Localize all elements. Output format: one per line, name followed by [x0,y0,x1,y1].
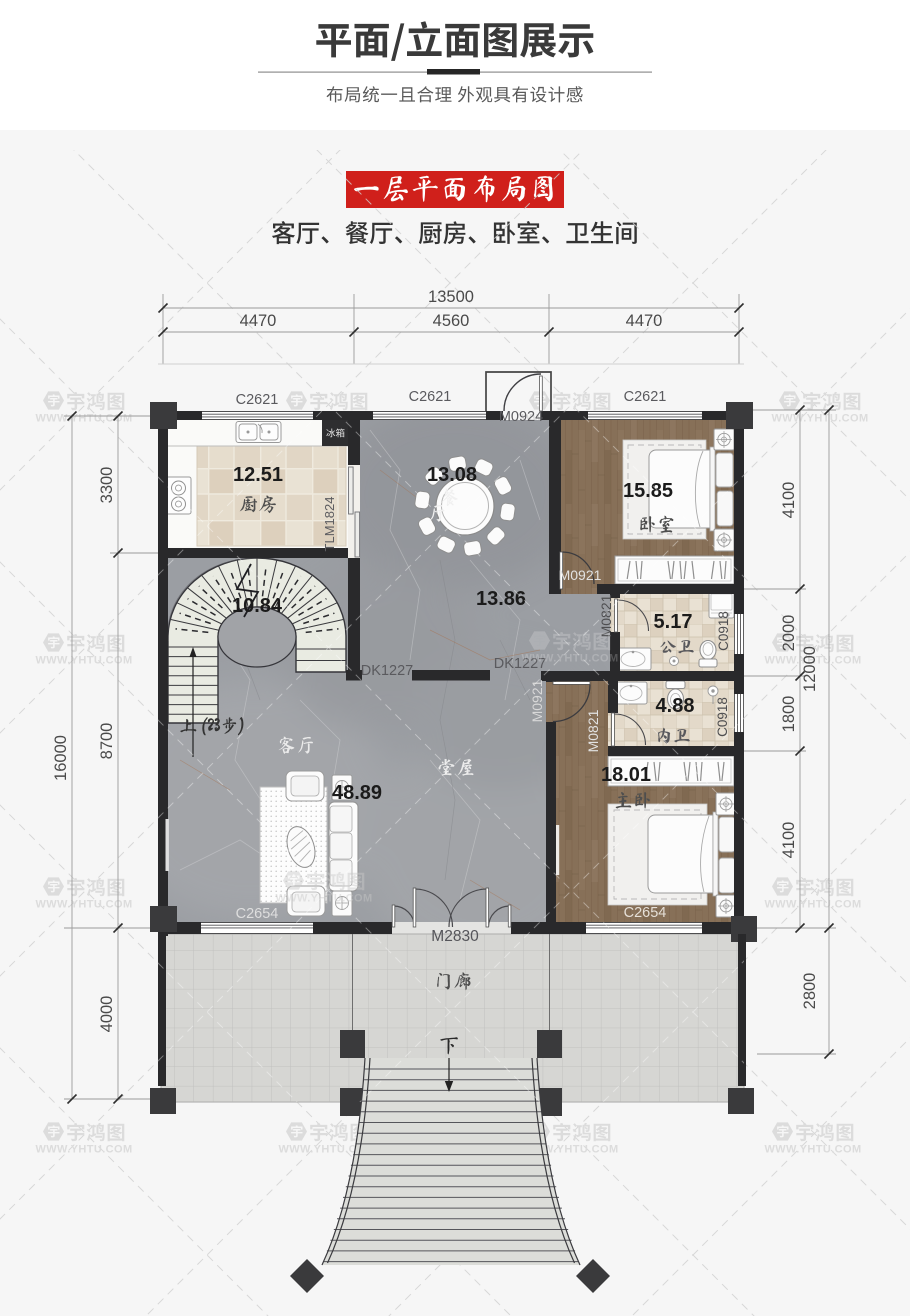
svg-text:WWW.YHTU.COM: WWW.YHTU.COM [771,413,868,425]
svg-text:2000: 2000 [780,615,798,652]
svg-text:16000: 16000 [52,735,70,781]
svg-text:5.17: 5.17 [654,611,693,633]
svg-text:4100: 4100 [780,822,798,859]
svg-text:4100: 4100 [780,482,798,519]
svg-text:C2621: C2621 [236,392,279,408]
svg-text:13500: 13500 [428,288,474,306]
svg-text:TLM1824: TLM1824 [322,497,337,552]
svg-text:48.89: 48.89 [332,782,382,804]
svg-text:18.01: 18.01 [601,764,651,786]
svg-text:M0921: M0921 [529,679,545,722]
svg-text:C2654: C2654 [236,906,279,922]
svg-text:12000: 12000 [801,646,819,692]
svg-text:8700: 8700 [98,723,116,760]
svg-text:M0921: M0921 [559,567,602,583]
svg-text:WWW.YHTU.COM: WWW.YHTU.COM [764,899,861,911]
svg-text:WWW.YHTU.COM: WWW.YHTU.COM [521,653,618,665]
svg-text:10.84: 10.84 [232,595,283,617]
svg-text:C2621: C2621 [624,389,667,405]
svg-text:2800: 2800 [801,973,819,1010]
svg-text:DK1227: DK1227 [361,663,413,679]
svg-text:M0924: M0924 [499,409,543,425]
svg-text:4560: 4560 [433,312,470,330]
svg-text:C0918: C0918 [716,611,731,651]
svg-text:C2654: C2654 [624,905,667,921]
svg-text:3300: 3300 [98,467,116,504]
svg-text:WWW.YHTU.COM: WWW.YHTU.COM [35,1144,132,1156]
svg-text:13.08: 13.08 [427,464,477,486]
svg-text:13.86: 13.86 [476,588,526,610]
svg-text:M0821: M0821 [598,594,614,637]
svg-text:4.88: 4.88 [656,695,695,717]
svg-text:4000: 4000 [98,996,116,1033]
svg-text:M2830: M2830 [431,928,479,945]
svg-text:C0918: C0918 [715,697,730,737]
svg-text:C2621: C2621 [409,389,452,405]
svg-text:4470: 4470 [240,312,277,330]
svg-text:WWW.YHTU.COM: WWW.YHTU.COM [764,1144,861,1156]
svg-text:1800: 1800 [780,696,798,733]
svg-text:4470: 4470 [626,312,663,330]
svg-text:M0821: M0821 [585,709,601,752]
svg-text:WWW.YHTU.COM: WWW.YHTU.COM [275,893,372,905]
